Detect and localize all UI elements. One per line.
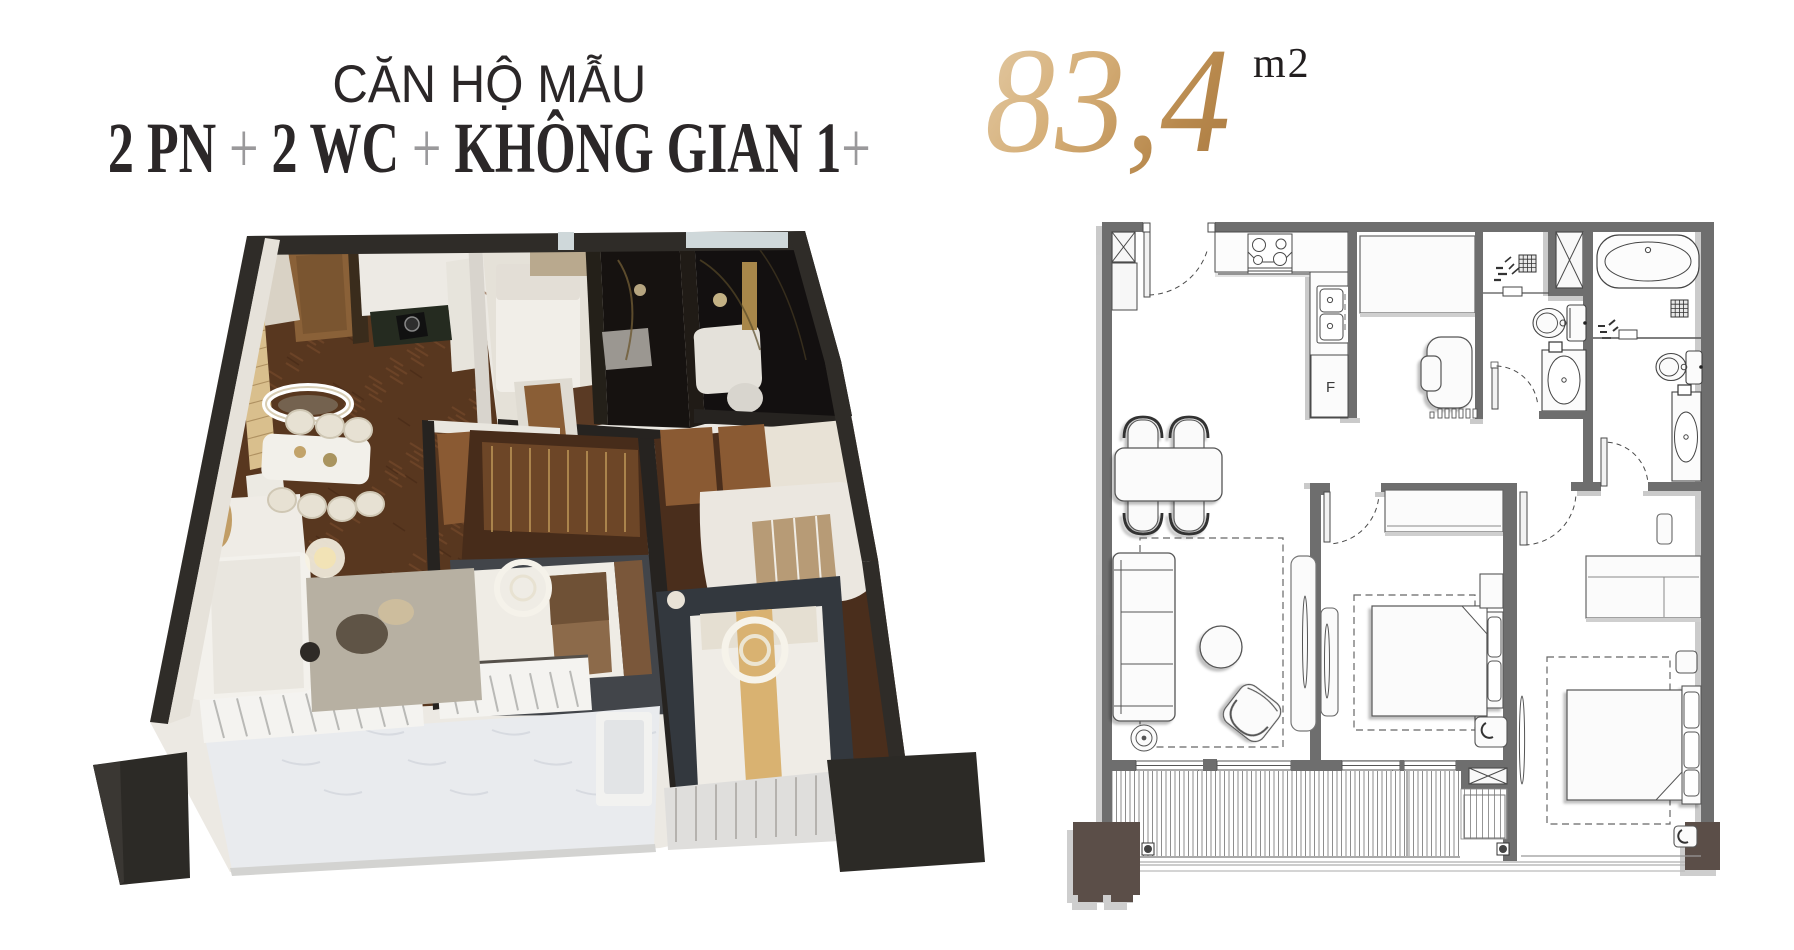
svg-text:F: F bbox=[1326, 379, 1335, 396]
